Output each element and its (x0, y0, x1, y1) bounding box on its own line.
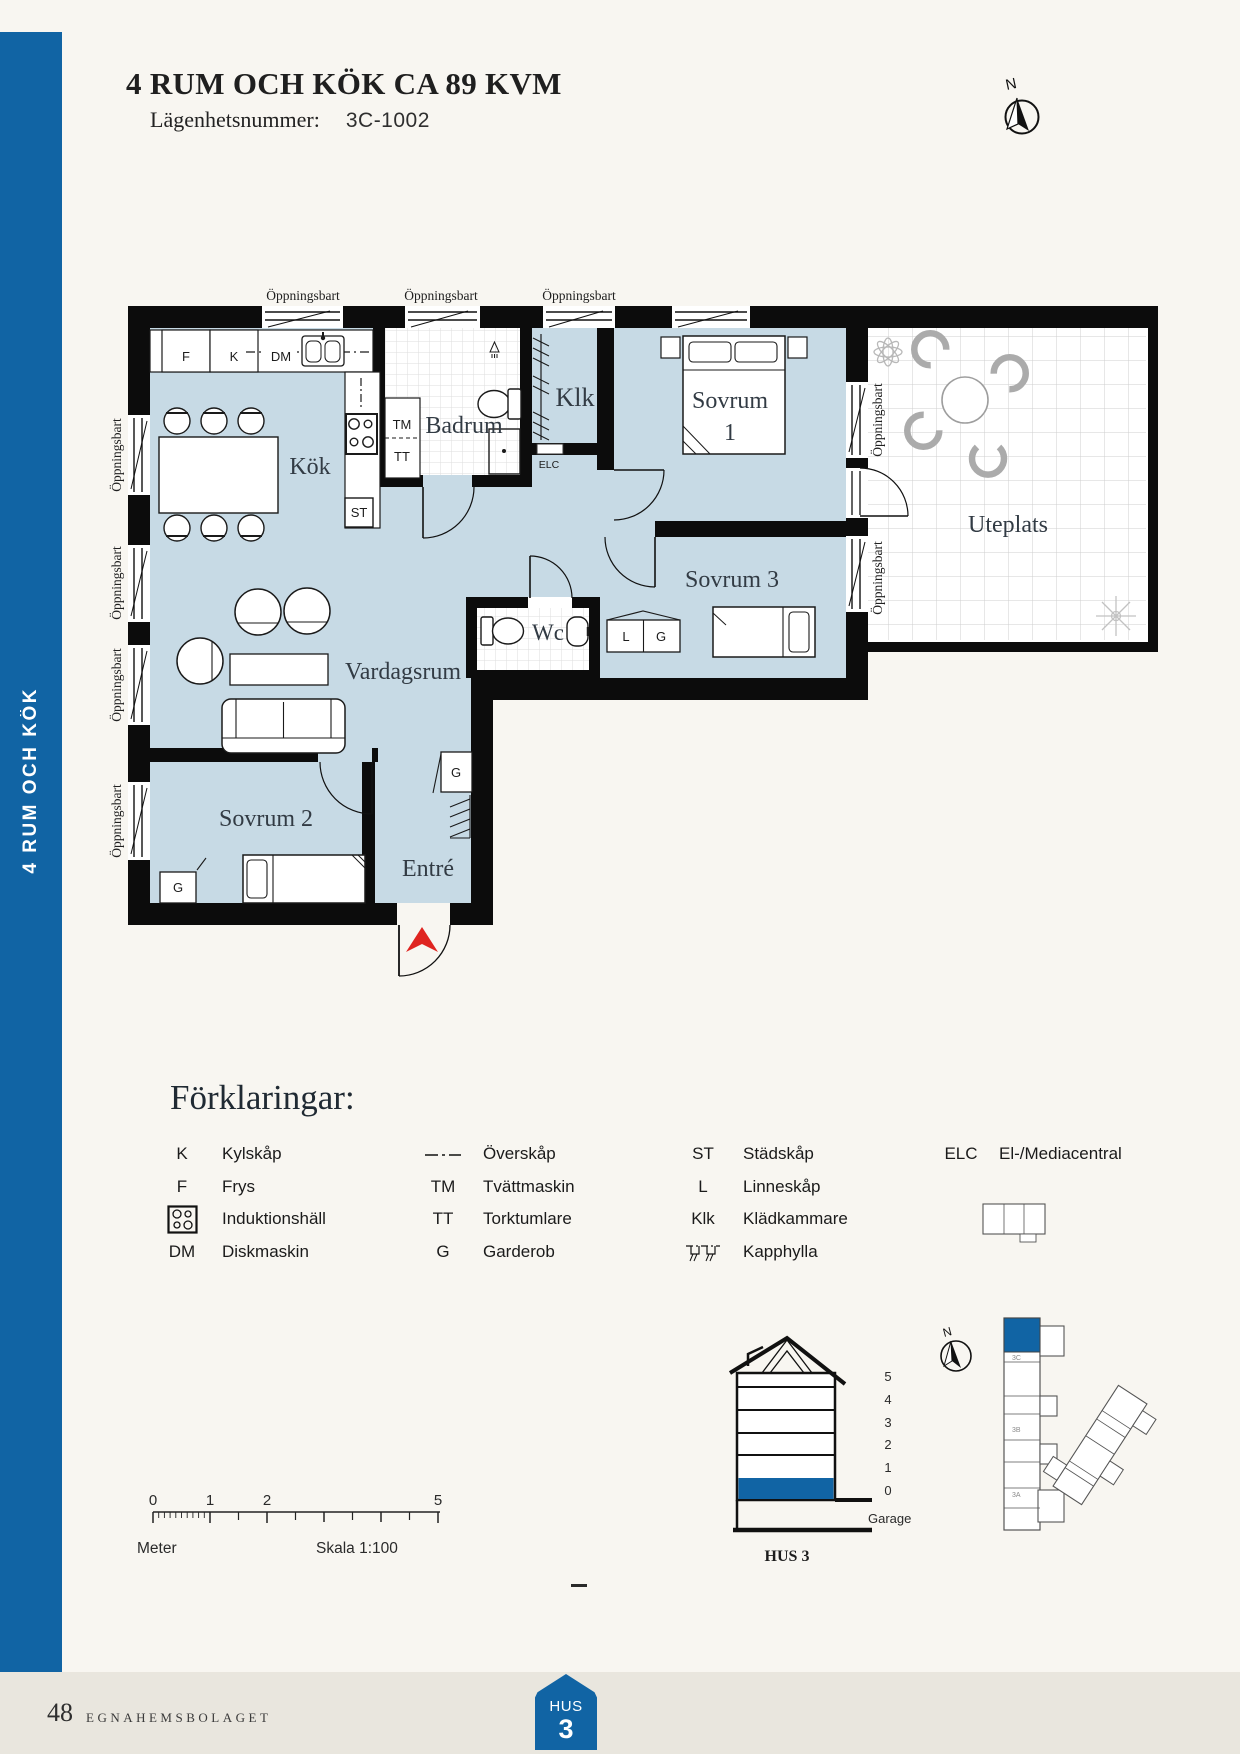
highlighted-floor (739, 1478, 834, 1499)
legend-sym-g: G (419, 1242, 467, 1262)
sofa (222, 699, 345, 753)
window-top-3 (543, 306, 615, 328)
openable-left-2: Öppningsbart (109, 546, 124, 620)
overskap-line-icon (419, 1144, 467, 1164)
openable-right-2: Öppningsbart (870, 541, 885, 615)
induction-hob-icon (158, 1205, 206, 1234)
label-badrum: Badrum (425, 413, 503, 439)
legend-sym-dm: DM (158, 1242, 206, 1262)
legend-label: El-/Mediacentral (999, 1144, 1122, 1164)
legend-label: Kylskåp (222, 1144, 282, 1164)
entrance-arrow (406, 927, 438, 952)
site-north-letter: N (941, 1324, 953, 1340)
legend-row: ST Städskåp (679, 1138, 848, 1171)
legend-row: K Kylskåp (158, 1138, 326, 1171)
legend-column-2: Överskåp TM Tvättmaskin TT Torktumlare G… (419, 1138, 575, 1268)
floor-5: 5 (884, 1369, 891, 1384)
kitchen-sink (302, 332, 344, 366)
hus-badge-label: HUS (549, 1698, 582, 1715)
legend-sym-f: F (158, 1177, 206, 1197)
marker-l: L (622, 629, 629, 644)
north-letter: N (1004, 75, 1018, 94)
page-number: 48 (47, 1698, 73, 1728)
brochure-page: 4 RUM OCH KÖK 4 RUM OCH KÖK CA 89 KVM Lä… (0, 0, 1240, 1754)
site-plan: 3C 3B 3A (983, 1204, 1160, 1530)
legend-heading: Förklaringar: (170, 1078, 355, 1118)
label-sovrum3: Sovrum 3 (685, 567, 779, 593)
room-uteplats (868, 306, 1158, 652)
garage-label: Garage (868, 1511, 911, 1526)
building-section: 5 4 3 2 1 0 Garage HUS 3 (730, 1338, 911, 1565)
window-right-1 (846, 382, 868, 458)
legend-label: Torktumlare (483, 1209, 572, 1229)
scale-tick-5: 5 (434, 1492, 442, 1509)
label-klk: Klk (556, 383, 595, 412)
legend-column-4: ELC El-/Mediacentral (937, 1138, 1122, 1171)
legend-sym-tt: TT (419, 1209, 467, 1229)
openable-left-3: Öppningsbart (109, 648, 124, 722)
legend-label: Frys (222, 1177, 255, 1197)
legend-column-1: K Kylskåp F Frys Induktionshäll DM Diskm… (158, 1138, 326, 1268)
label-kok: Kök (289, 454, 330, 480)
legend-sym-st: ST (679, 1144, 727, 1164)
publisher-name: EGNAHEMSBOLAGET (86, 1710, 271, 1726)
openable-left-1: Öppningsbart (109, 418, 124, 492)
window-left-4 (128, 782, 150, 860)
scale-bar: 0 1 2 5 Meter Skala 1:100 (137, 1492, 442, 1557)
legend-sym-elc: ELC (937, 1144, 985, 1164)
toilet-wc (481, 617, 524, 645)
scale-tick-2: 2 (263, 1492, 271, 1509)
armchair-2 (284, 588, 330, 634)
openable-right-1: Öppningsbart (870, 383, 885, 457)
patio-grid (868, 328, 1146, 640)
site-building-top (983, 1204, 1045, 1234)
legend-row: Överskåp (419, 1138, 575, 1171)
floor-2: 2 (884, 1437, 891, 1452)
patio-plant-bottom (1096, 596, 1136, 636)
site-label-3c: 3C (1012, 1355, 1021, 1362)
legend-column-3: ST Städskåp L Linneskåp Klk Klädkammare … (679, 1138, 848, 1268)
window-top-2 (405, 306, 480, 328)
legend-label: Överskåp (483, 1144, 556, 1164)
marker-g3: G (173, 880, 183, 895)
legend-label: Induktionshäll (222, 1209, 326, 1229)
marker-tm: TM (393, 417, 412, 432)
floor-1: 1 (884, 1460, 891, 1475)
bed-sovrum3 (713, 607, 815, 657)
marker-g2: G (451, 765, 461, 780)
dining-chairs-bottom (164, 515, 264, 541)
site-label-3a: 3A (1012, 1492, 1021, 1499)
legend-label: Kapphylla (743, 1242, 818, 1262)
legend-row: G Garderob (419, 1236, 575, 1269)
marker-g1: G (656, 629, 666, 644)
legend-row: Klk Klädkammare (679, 1203, 848, 1236)
label-entre: Entré (402, 856, 454, 882)
site-highlight-3c (1004, 1318, 1040, 1352)
armchair-1 (235, 589, 281, 635)
openable-left-4: Öppningsbart (109, 784, 124, 858)
label-vardagsrum: Vardagsrum (345, 659, 461, 685)
openable-top-2: Öppningsbart (404, 288, 478, 303)
legend-sym-tm: TM (419, 1177, 467, 1197)
window-top-1 (262, 306, 343, 328)
armchair-3 (177, 638, 223, 684)
legend-row: ELC El-/Mediacentral (937, 1138, 1122, 1171)
floor-plan-drawing: N (0, 0, 1240, 1754)
marker-k: K (230, 349, 239, 364)
window-top-4 (672, 306, 750, 328)
scale-unit: Meter (137, 1540, 177, 1557)
marker-elc: ELC (539, 459, 560, 471)
compass-needle-dark (1017, 98, 1029, 131)
legend-row: DM Diskmaskin (158, 1236, 326, 1269)
legend-label: Klädkammare (743, 1209, 848, 1229)
legend-row: Kapphylla (679, 1236, 848, 1269)
legend-row: TM Tvättmaskin (419, 1171, 575, 1204)
legend-label: Garderob (483, 1242, 555, 1262)
induction-hob (346, 414, 377, 454)
site-north-compass: N (941, 1324, 971, 1371)
window-left-2 (128, 545, 150, 622)
wc-sink (567, 617, 588, 646)
dining-table (159, 437, 278, 513)
marker-dm: DM (271, 349, 291, 364)
scale-tick-1: 1 (206, 1492, 214, 1509)
elc-niche (537, 444, 563, 454)
floor-0: 0 (884, 1483, 891, 1498)
scale-ratio: Skala 1:100 (316, 1540, 398, 1557)
legend-sym-l: L (679, 1177, 727, 1197)
label-sovrum1-line1: Sovrum (692, 388, 768, 414)
legend-row: F Frys (158, 1171, 326, 1204)
legend-sym-klk: Klk (679, 1209, 727, 1229)
hus-badge-number: 3 (558, 1715, 573, 1743)
label-sovrum1-line2: 1 (724, 420, 736, 446)
scale-tick-0: 0 (149, 1492, 157, 1509)
dining-chairs-top (164, 408, 264, 434)
label-sovrum2: Sovrum 2 (219, 806, 313, 832)
site-building-strip: 3C 3B 3A (1004, 1318, 1064, 1530)
legend-row: L Linneskåp (679, 1171, 848, 1204)
bed-sovrum2 (243, 855, 365, 903)
legend-label: Städskåp (743, 1144, 814, 1164)
coffee-table (230, 654, 328, 685)
label-wc: Wc (532, 620, 564, 645)
floor-3: 3 (884, 1415, 891, 1430)
legend-row: Induktionshäll (158, 1203, 326, 1236)
site-label-3b: 3B (1012, 1427, 1021, 1434)
openable-top-3: Öppningsbart (542, 288, 616, 303)
window-right-2 (846, 536, 868, 612)
legend-sym-k: K (158, 1144, 206, 1164)
legend-row: TT Torktumlare (419, 1203, 575, 1236)
openable-top-1: Öppningsbart (266, 288, 340, 303)
window-left-1 (128, 415, 150, 495)
dining-set (159, 408, 278, 541)
legend-label: Tvättmaskin (483, 1177, 575, 1197)
floor-4: 4 (884, 1392, 891, 1407)
kapphylla-icon (679, 1240, 727, 1264)
legend-label: Diskmaskin (222, 1242, 309, 1262)
page-dash-mark (571, 1584, 587, 1587)
window-left-3 (128, 645, 150, 725)
building-name: HUS 3 (765, 1548, 810, 1565)
label-uteplats: Uteplats (968, 512, 1048, 538)
marker-st: ST (351, 505, 368, 520)
marker-tt: TT (394, 449, 410, 464)
north-compass: N (1004, 75, 1038, 133)
marker-f: F (182, 349, 190, 364)
legend-label: Linneskåp (743, 1177, 821, 1197)
